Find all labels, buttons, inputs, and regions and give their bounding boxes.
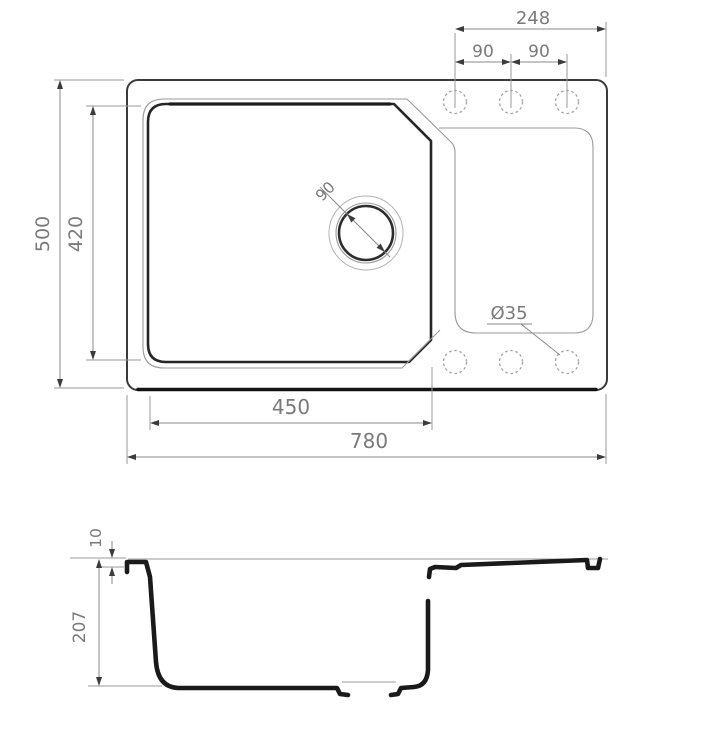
dim-label-bowl-width: 450 — [272, 395, 310, 419]
arrowhead — [455, 26, 464, 32]
arrowhead — [90, 351, 96, 360]
arrowhead — [455, 59, 464, 65]
faucet-hole-bottom-middle — [500, 351, 523, 374]
side-view: 10 207 — [70, 528, 608, 695]
faucet-hole-bottom-left — [444, 351, 467, 374]
arrowhead — [57, 379, 63, 388]
dim-label-hole-spacing-right: 90 — [528, 42, 550, 62]
dim-label-hole-diameter: Ø35 — [490, 303, 527, 324]
sink-technical-drawing: 90 248 90 90 — [0, 0, 710, 748]
arrowhead — [502, 59, 511, 65]
dim-label-bowl-depth: 420 — [65, 216, 87, 252]
drawing-canvas: 90 248 90 90 — [0, 0, 710, 748]
profile-right-wall — [391, 601, 428, 695]
arrowhead — [96, 677, 102, 686]
profile-drainboard — [429, 559, 600, 577]
arrowhead — [109, 567, 115, 576]
arrowhead — [597, 454, 606, 460]
leader-line — [521, 324, 560, 355]
dim-label-drain-diameter: 90 — [312, 178, 339, 205]
dimension-width-overall: 780 — [127, 394, 606, 464]
bowl-edge — [148, 104, 431, 362]
dim-label-rim-thickness: 10 — [87, 528, 105, 548]
dim-label-bowl-height: 207 — [70, 611, 90, 643]
dim-label-depth-overall: 500 — [32, 216, 54, 252]
arrowhead — [597, 26, 606, 32]
dimension-bowl-depth: 420 — [65, 106, 141, 360]
sink-outer-edge — [127, 80, 607, 390]
section-profile — [127, 559, 600, 695]
arrowhead — [511, 59, 520, 65]
dimension-hole-diameter: Ø35 — [487, 303, 560, 355]
arrowhead — [90, 106, 96, 115]
sink-outline — [127, 80, 607, 390]
dim-label-hole-spacing-left: 90 — [472, 42, 494, 62]
arrowhead — [109, 549, 115, 558]
faucet-holes — [444, 91, 579, 374]
arrowhead — [57, 80, 63, 89]
arrowhead — [150, 420, 159, 426]
dimension-rim-thickness: 10 — [70, 528, 126, 584]
dim-label-width-overall: 780 — [350, 429, 388, 453]
top-view: 90 248 90 90 — [32, 8, 607, 464]
drainboard-outline — [407, 99, 593, 333]
arrowhead — [558, 59, 567, 65]
profile-left-wall — [127, 562, 348, 695]
drain: 90 — [312, 178, 403, 270]
arrowhead — [423, 420, 432, 426]
dim-label-hole-span: 248 — [516, 8, 550, 29]
arrowhead — [127, 454, 136, 460]
dimension-bowl-width: 450 — [150, 367, 432, 430]
dimension-hole-spacing: 90 90 — [455, 42, 567, 108]
arrowhead — [96, 559, 102, 568]
